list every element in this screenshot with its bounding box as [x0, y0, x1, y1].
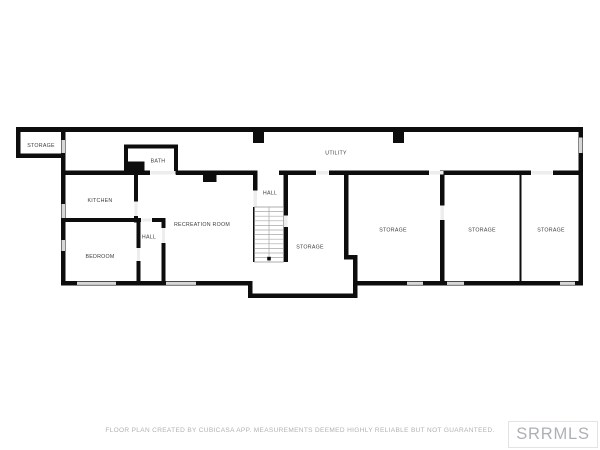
- walls: [16, 127, 583, 298]
- stairs: [255, 207, 284, 262]
- window-marker: [62, 204, 66, 218]
- window-marker: [447, 282, 464, 285]
- door-marker: [317, 171, 329, 175]
- room-label-storage-center: STORAGE: [296, 245, 324, 251]
- wall: [162, 218, 166, 228]
- wall: [176, 171, 257, 176]
- stairs-arrow-dot: [267, 257, 271, 261]
- room-label-hall-left: HALL: [142, 235, 156, 241]
- door-marker: [441, 206, 445, 221]
- wall-thin: [520, 172, 522, 282]
- mls-logo-text: SRRMLS: [516, 425, 590, 444]
- room-label-storage-right-3: STORAGE: [537, 228, 565, 234]
- door-markers: [135, 171, 553, 261]
- room-label-recreation-room: RECREATION ROOM: [174, 222, 230, 228]
- window-marker: [407, 282, 423, 285]
- door-marker: [137, 248, 140, 261]
- wall: [162, 243, 166, 282]
- window-marker: [62, 240, 66, 251]
- wall: [353, 255, 358, 298]
- door-marker: [151, 171, 176, 175]
- door-marker: [135, 202, 138, 217]
- window-marker: [77, 282, 116, 285]
- mls-logo-box: SRRMLS: [508, 421, 598, 448]
- wall: [137, 261, 141, 282]
- window-marker: [166, 282, 196, 285]
- room-labels: STORAGE BATH KITCHEN HALL BEDROOM RECREA…: [27, 143, 565, 260]
- wall-stub: [393, 132, 404, 143]
- door-marker: [254, 191, 258, 208]
- window-marker: [62, 140, 66, 153]
- wall: [253, 171, 258, 191]
- wall: [16, 127, 21, 158]
- wall: [440, 220, 445, 286]
- door-marker: [532, 171, 553, 175]
- room-label-bath: BATH: [151, 159, 166, 165]
- wall: [284, 171, 289, 216]
- wall: [248, 294, 358, 299]
- wall: [444, 171, 531, 176]
- wall: [16, 154, 66, 159]
- wall: [61, 218, 141, 222]
- wall: [344, 172, 349, 260]
- room-label-kitchen: KITCHEN: [88, 198, 113, 204]
- wall: [174, 145, 178, 175]
- room-label-storage-upper-left: STORAGE: [27, 143, 55, 149]
- wall-stub: [203, 175, 217, 182]
- floor-plan: STORAGE BATH KITCHEN HALL BEDROOM RECREA…: [0, 0, 600, 450]
- room-label-bedroom: BEDROOM: [85, 254, 114, 260]
- wall: [553, 171, 583, 176]
- wall: [353, 281, 583, 286]
- floor-plan-drawing: STORAGE BATH KITCHEN HALL BEDROOM RECREA…: [0, 0, 600, 450]
- room-label-utility: UTILITY: [325, 151, 347, 157]
- wall: [329, 171, 429, 176]
- door-marker: [430, 171, 444, 175]
- wall: [440, 171, 445, 206]
- wall-stub: [253, 132, 264, 143]
- room-label-storage-right-1: STORAGE: [379, 228, 407, 234]
- room-label-hall-center: HALL: [263, 191, 277, 197]
- door-marker: [142, 219, 152, 222]
- wall: [134, 171, 138, 202]
- door-marker: [284, 216, 288, 228]
- wall: [16, 127, 583, 132]
- room-label-storage-right-2: STORAGE: [468, 228, 496, 234]
- window-marker: [560, 282, 575, 285]
- wall: [137, 218, 141, 248]
- wall: [284, 227, 289, 262]
- wall: [124, 145, 178, 149]
- window-marker: [579, 138, 583, 154]
- door-marker: [162, 228, 165, 243]
